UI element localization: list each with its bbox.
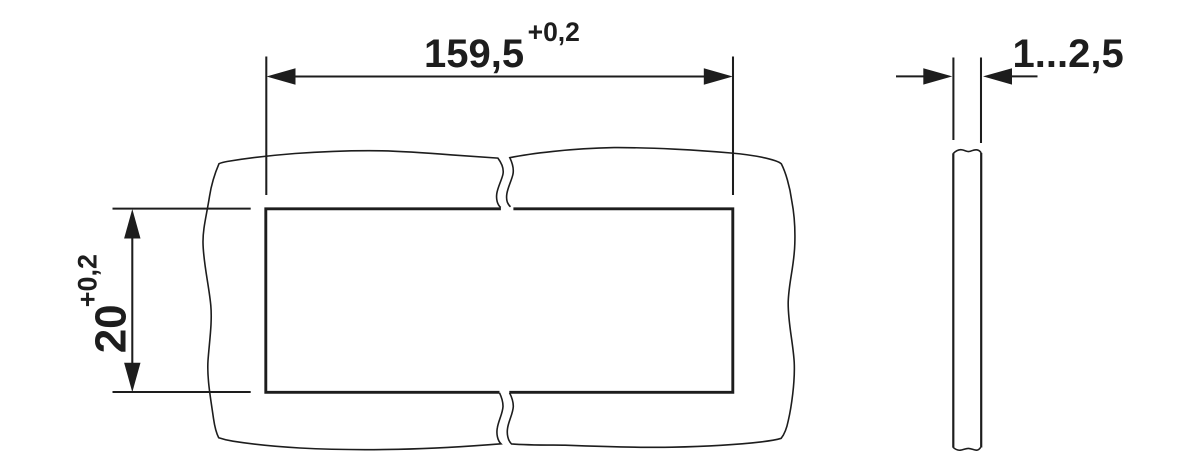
svg-text:+0,2: +0,2 — [528, 17, 580, 47]
svg-text:1...2,5: 1...2,5 — [1013, 32, 1124, 76]
svg-text:+0,2: +0,2 — [72, 254, 102, 307]
svg-text:20: 20 — [87, 304, 136, 353]
svg-text:159,5: 159,5 — [424, 32, 524, 76]
